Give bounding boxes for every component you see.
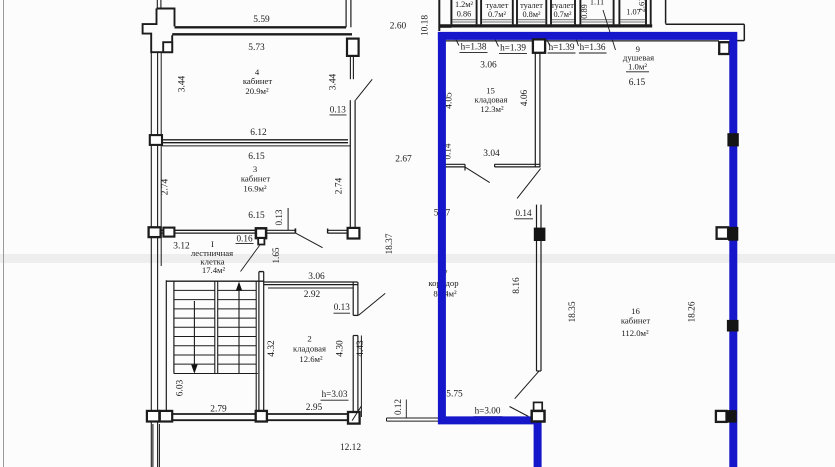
svg-text:1.65: 1.65 — [271, 247, 281, 263]
svg-text:4.06: 4.06 — [520, 89, 530, 106]
svg-text:6.15: 6.15 — [629, 78, 646, 88]
svg-text:туалет: туалет — [520, 1, 543, 10]
svg-text:3.04: 3.04 — [483, 149, 500, 159]
svg-text:туалет: туалет — [486, 1, 509, 10]
svg-text:8.16: 8.16 — [512, 277, 522, 294]
svg-text:0.7м²: 0.7м² — [553, 10, 572, 19]
svg-text:6.12: 6.12 — [250, 128, 267, 138]
svg-text:4.30: 4.30 — [336, 340, 346, 357]
svg-text:10.18: 10.18 — [421, 15, 431, 36]
svg-text:3.12: 3.12 — [173, 242, 190, 252]
svg-text:туалет: туалет — [551, 1, 574, 10]
svg-text:кабинет: кабинет — [241, 174, 271, 184]
svg-text:5.59: 5.59 — [253, 15, 270, 25]
svg-text:2.60: 2.60 — [390, 22, 407, 32]
svg-text:3.44: 3.44 — [178, 75, 188, 92]
svg-text:12.6м²: 12.6м² — [299, 354, 323, 364]
svg-text:2.92: 2.92 — [304, 290, 321, 300]
svg-text:кладовая: кладовая — [474, 95, 507, 105]
svg-text:0.14: 0.14 — [515, 208, 531, 218]
svg-text:2.95: 2.95 — [306, 403, 323, 413]
svg-text:0.13: 0.13 — [330, 105, 346, 115]
svg-text:3.06: 3.06 — [308, 272, 325, 282]
svg-text:3.06: 3.06 — [480, 61, 497, 71]
svg-text:6.03: 6.03 — [176, 379, 186, 396]
svg-text:6.15: 6.15 — [248, 211, 265, 221]
svg-text:2.67: 2.67 — [395, 155, 412, 165]
svg-text:h=1.39: h=1.39 — [549, 42, 575, 52]
svg-text:20.9м²: 20.9м² — [245, 86, 269, 96]
svg-text:кабинет: кабинет — [621, 316, 651, 326]
svg-text:18.35: 18.35 — [568, 301, 578, 322]
svg-text:2.74: 2.74 — [161, 178, 171, 195]
svg-text:16: 16 — [631, 306, 640, 316]
svg-text:4.32: 4.32 — [267, 340, 277, 357]
svg-text:0.8м²: 0.8м² — [522, 10, 541, 19]
svg-text:4.43: 4.43 — [356, 340, 366, 357]
svg-text:3: 3 — [253, 164, 257, 174]
svg-text:6.15: 6.15 — [248, 152, 265, 162]
svg-text:3.44: 3.44 — [329, 73, 339, 90]
svg-text:h=1.38: h=1.38 — [461, 42, 487, 52]
svg-text:2.61: 2.61 — [638, 0, 647, 12]
svg-text:5.75: 5.75 — [446, 390, 463, 400]
svg-text:кладовая: кладовая — [293, 344, 326, 354]
svg-text:12.3м²: 12.3м² — [480, 104, 504, 114]
svg-text:h=1.36: h=1.36 — [580, 42, 606, 52]
svg-text:h=1.39: h=1.39 — [500, 43, 526, 53]
svg-text:12.12: 12.12 — [340, 443, 361, 453]
svg-text:0.13: 0.13 — [334, 302, 350, 312]
svg-text:0.89: 0.89 — [580, 4, 589, 19]
svg-text:4.05: 4.05 — [445, 92, 455, 109]
svg-text:17.4м²: 17.4м² — [202, 265, 226, 275]
svg-text:2.74: 2.74 — [335, 177, 345, 194]
svg-text:2: 2 — [307, 334, 311, 344]
svg-text:112.0м²: 112.0м² — [621, 328, 649, 338]
svg-text:0.7м²: 0.7м² — [488, 10, 507, 19]
svg-text:16.9м²: 16.9м² — [243, 184, 267, 194]
svg-text:h=3.00: h=3.00 — [475, 406, 501, 416]
svg-text:1.2м²: 1.2м² — [455, 0, 474, 9]
svg-text:0.12: 0.12 — [393, 399, 403, 415]
svg-text:h=3.03: h=3.03 — [322, 389, 348, 399]
svg-text:0.13: 0.13 — [274, 209, 284, 225]
svg-text:5.73: 5.73 — [248, 43, 265, 53]
svg-text:0.86: 0.86 — [457, 10, 472, 19]
svg-text:1.0м²: 1.0м² — [628, 62, 647, 72]
svg-text:2.79: 2.79 — [210, 405, 227, 415]
svg-text:0.16: 0.16 — [236, 234, 252, 244]
svg-text:18.37: 18.37 — [385, 233, 395, 254]
svg-text:кабинет: кабинет — [243, 76, 273, 86]
svg-text:1.11: 1.11 — [590, 0, 604, 7]
svg-text:18.26: 18.26 — [688, 301, 698, 322]
